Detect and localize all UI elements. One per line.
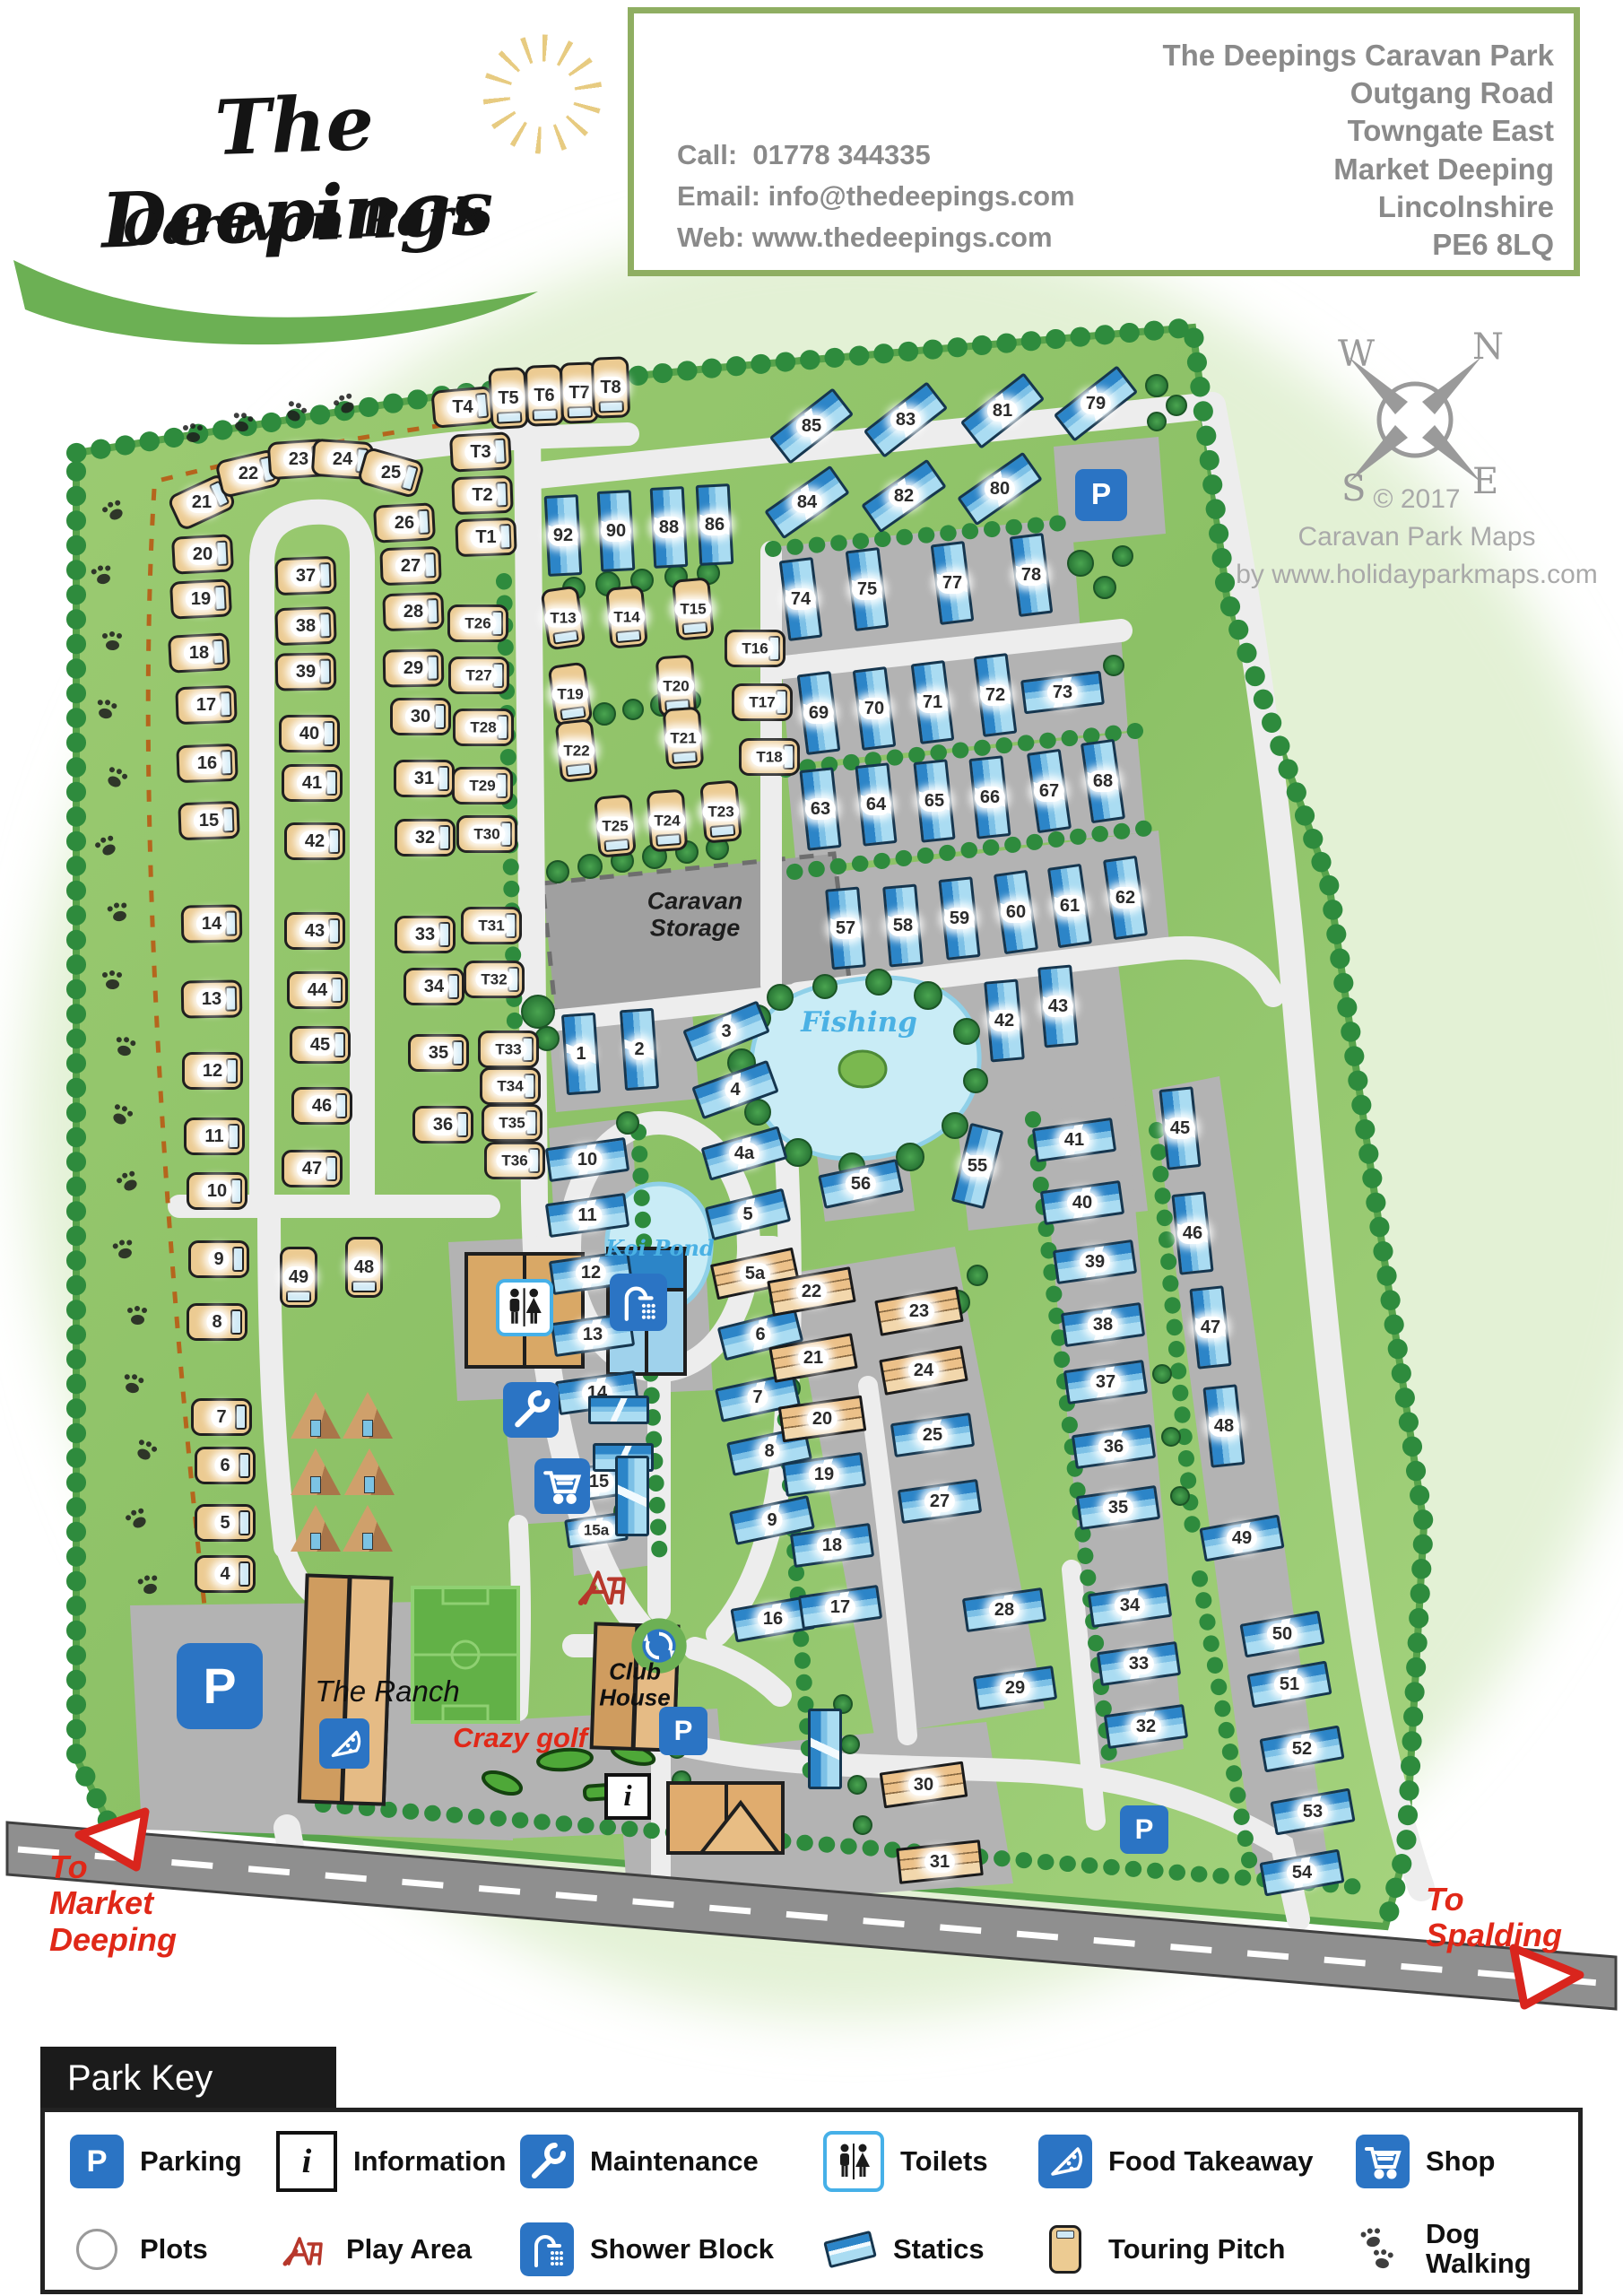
legend-label: Maintenance [590,2147,759,2177]
plots-icon [70,2222,124,2276]
legend-item-maintenance: Maintenance [520,2130,759,2193]
legend-label: Touring Pitch [1108,2235,1285,2265]
legend-label: Shower Block [590,2235,774,2265]
to-spalding-label: To Spalding [1426,1882,1562,1954]
legend-label: Statics [893,2235,985,2265]
legend-item-shower: Shower Block [520,2218,774,2281]
legend-item-toilets: Toilets [823,2130,988,2193]
dog-icon [1356,2222,1410,2276]
playarea-icon [276,2222,330,2276]
info-icon: i [276,2131,337,2192]
legend-label: Shop [1426,2147,1496,2177]
legend-item-playarea: Play Area [276,2218,472,2281]
maintenance-icon [520,2135,574,2188]
legend-label: Plots [140,2235,208,2265]
legend-label: Dog Walking [1426,2220,1532,2278]
statics-icon [823,2222,877,2276]
shop-icon [1356,2135,1410,2188]
legend-item-info: iInformation [276,2130,507,2193]
to-market-deeping-label: To Market Deeping [49,1849,177,1958]
legend-label: Food Takeaway [1108,2147,1314,2177]
parking-icon: P [70,2135,124,2188]
touring-icon [1038,2222,1092,2276]
park-key-title: Park Key [40,2047,336,2109]
crazy-golf-label: Crazy golf [453,1723,587,1753]
toilets-icon [823,2131,884,2192]
legend-item-statics: Statics [823,2218,985,2281]
legend-item-shop: Shop [1356,2130,1496,2193]
legend-item-dog: Dog Walking [1356,2218,1532,2281]
legend-label: Toilets [900,2147,988,2177]
koi-pond-label: Koi Pond [605,1237,714,1260]
legend-item-touring: Touring Pitch [1038,2218,1285,2281]
legend-label: Parking [140,2147,242,2177]
caravan-storage-label: Caravan Storage [647,888,743,941]
legend-label: Information [353,2147,507,2177]
park-key-legend: PParkingiInformationMaintenanceToiletsFo… [40,2108,1583,2294]
the-ranch-label: The Ranch [315,1675,459,1708]
park-map: The Deepings Caravan Park Call: 01778 34… [0,0,1623,2296]
food-icon [1038,2135,1092,2188]
club-house-label: Club House [599,1658,670,1709]
legend-item-parking: PParking [70,2130,242,2193]
fishing-lake-label: Fishing [801,1007,917,1038]
labels-layer: Caravan StorageFishingKoi PondThe RanchC… [0,0,1623,2296]
legend-item-plots: Plots [70,2218,208,2281]
legend-label: Play Area [346,2235,472,2265]
shower-icon [520,2222,574,2276]
legend-item-food: Food Takeaway [1038,2130,1314,2193]
